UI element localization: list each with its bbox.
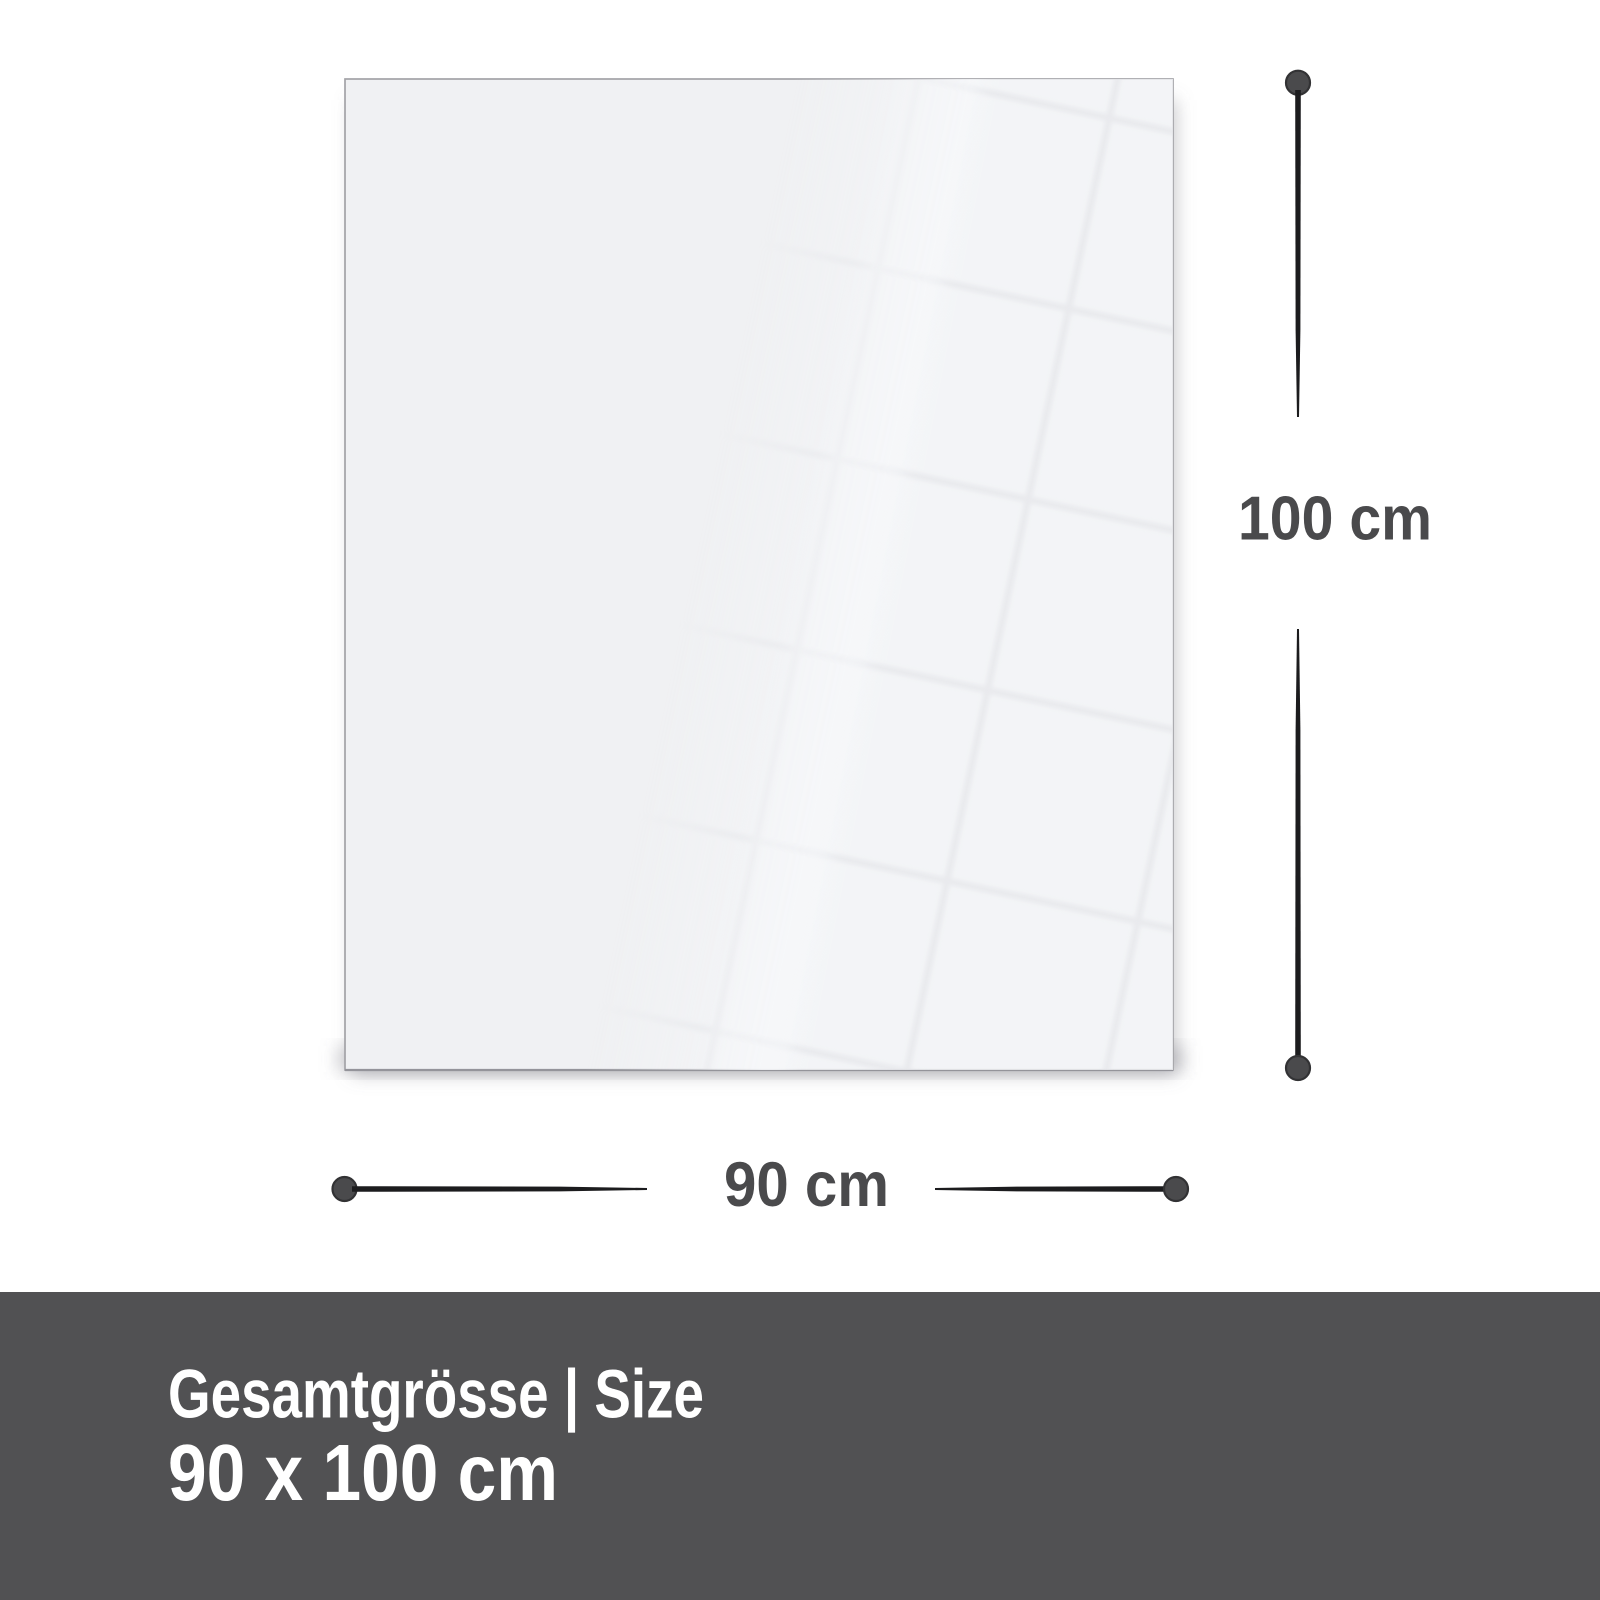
svg-text:90 cm: 90 cm bbox=[724, 1150, 889, 1220]
svg-text:Gesamtgrösse | Size: Gesamtgrösse | Size bbox=[168, 1356, 704, 1434]
svg-text:90 x 100 cm: 90 x 100 cm bbox=[168, 1428, 558, 1517]
svg-text:100 cm: 100 cm bbox=[1238, 484, 1432, 554]
